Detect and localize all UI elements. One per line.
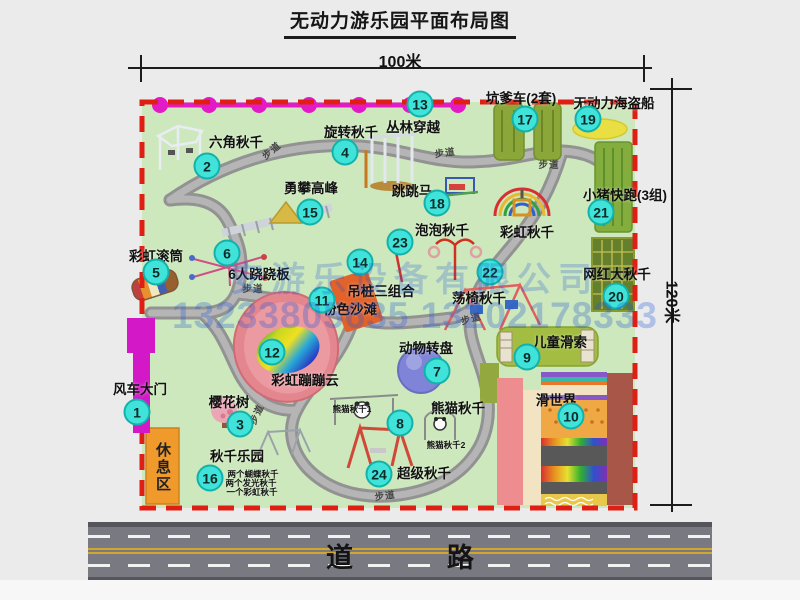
slide-world-icon [480, 363, 633, 506]
road-label: 道 路 [88, 536, 712, 575]
rest-area-label: 休息区 [146, 430, 179, 504]
road-edge-top [88, 522, 712, 527]
pirate-ship-icon [573, 119, 627, 139]
children-zipline-icon [497, 327, 598, 366]
road: 道 路 [88, 522, 712, 580]
animal-turntable-icon [398, 347, 444, 393]
big-net-swing-icon [592, 238, 634, 311]
width-dimension-label: 100米 [360, 48, 440, 72]
road-edge-bottom [88, 577, 712, 580]
piggy-run-icon [595, 142, 632, 232]
park-layout-screenshot: 无动力游乐园平面布局图 [0, 0, 800, 600]
photo-margin-bottom [0, 580, 800, 600]
height-dimension-label: 120米 [661, 281, 685, 324]
